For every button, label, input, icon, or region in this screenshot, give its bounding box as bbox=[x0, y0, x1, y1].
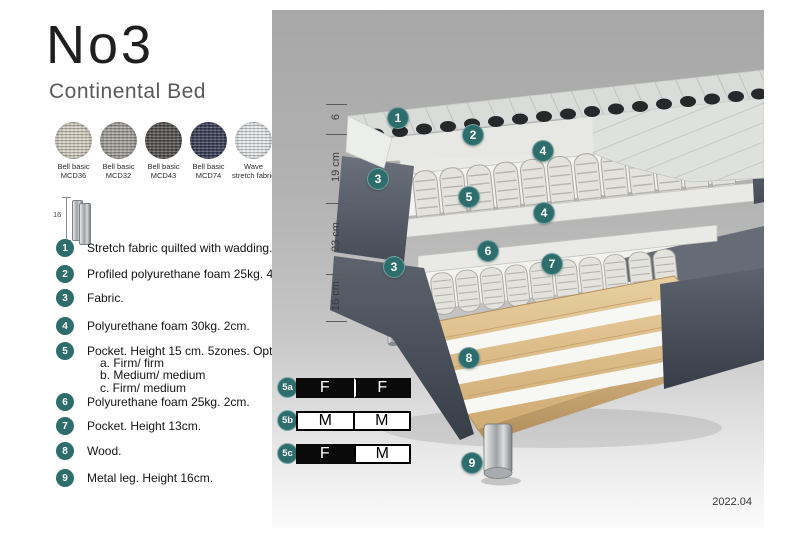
legend-item-9: 9 Metal leg. Height 16cm. bbox=[56, 469, 213, 487]
fabric-swatch-icon bbox=[100, 122, 137, 159]
version-label: 2022.04 bbox=[712, 496, 752, 508]
legend-item-text: Pocket. Height 13cm. bbox=[87, 419, 201, 433]
leg-height-value: 16 bbox=[52, 210, 62, 219]
dimension-label-leg: 16 cm bbox=[330, 266, 342, 326]
diagram-badge-8: 8 bbox=[458, 347, 480, 369]
swatch-code: MCD43 bbox=[151, 171, 176, 180]
swatch-name: Bell basic bbox=[147, 162, 179, 171]
legend-item-text: Profiled polyurethane foam 25kg. 4cm. bbox=[87, 267, 292, 281]
legend-item-text: Fabric. bbox=[87, 291, 124, 305]
diagram-badge-9: 9 bbox=[461, 452, 483, 474]
legend-item-1: 1 Stretch fabric quilted with wadding. bbox=[56, 239, 272, 257]
box-right-face bbox=[660, 268, 764, 389]
legend-number-badge: 8 bbox=[56, 442, 74, 460]
swatch-code: MCD32 bbox=[106, 171, 131, 180]
diagram-badge-5: 5 bbox=[458, 186, 480, 208]
dimension-label-box: 23 cm bbox=[330, 207, 342, 267]
swatch-bell-basic-mcd36: Bell basicMCD36 bbox=[51, 122, 96, 180]
firmness-row-5a: F F bbox=[296, 378, 411, 398]
firmness-cell: M bbox=[296, 411, 355, 431]
swatch-name: Bell basic bbox=[192, 162, 224, 171]
diagram-badge-3-upper: 3 bbox=[367, 168, 389, 190]
swatch-bell-basic-mcd32: Bell basicMCD32 bbox=[96, 122, 141, 180]
legend-item-8: 8 Wood. bbox=[56, 442, 121, 460]
legend-item-7: 7 Pocket. Height 13cm. bbox=[56, 417, 201, 435]
legend-item-4: 4 Polyurethane foam 30kg. 2cm. bbox=[56, 317, 250, 335]
firmness-cell: M bbox=[353, 411, 412, 431]
firmness-row-5b: M M bbox=[296, 411, 411, 431]
fabric-swatch-icon bbox=[55, 122, 92, 159]
fabric-swatches: Bell basicMCD36 Bell basicMCD32 Bell bas… bbox=[51, 122, 276, 180]
legend-item-text: Polyurethane foam 25kg. 2cm. bbox=[87, 395, 250, 409]
legend-number-badge: 2 bbox=[56, 265, 74, 283]
diagram-badge-3-lower: 3 bbox=[383, 256, 405, 278]
swatch-code: stretch fabric bbox=[232, 171, 275, 180]
legend-number-badge: 6 bbox=[56, 393, 74, 411]
firmness-row-label-5a: 5a bbox=[277, 377, 298, 398]
legend-number-badge: 9 bbox=[56, 469, 74, 487]
firmness-cell: F bbox=[354, 378, 412, 398]
firmness-row-label-5b: 5b bbox=[277, 410, 298, 431]
swatch-bell-basic-mcd74: Bell basicMCD74 bbox=[186, 122, 231, 180]
legend-item-text: Wood. bbox=[87, 444, 121, 458]
legend-number-badge: 5 bbox=[56, 342, 74, 360]
page-title: No3 bbox=[46, 14, 154, 76]
swatch-bell-basic-mcd43: Bell basicMCD43 bbox=[141, 122, 186, 180]
left-pane: No3 Continental Bed Bell basicMCD36 Bell… bbox=[0, 0, 272, 533]
diagram-badge-7: 7 bbox=[541, 253, 563, 275]
firmness-cell: F bbox=[296, 378, 354, 398]
diagram-panel: 6 19 cm 23 cm 16 cm 1 2 4 3 5 4 6 7 3 8 … bbox=[272, 10, 764, 528]
swatch-name: Bell basic bbox=[57, 162, 89, 171]
page: No3 Continental Bed Bell basicMCD36 Bell… bbox=[0, 0, 800, 533]
legend-item-text: Metal leg. Height 16cm. bbox=[87, 471, 213, 485]
legend-number-badge: 4 bbox=[56, 317, 74, 335]
page-subtitle: Continental Bed bbox=[49, 80, 206, 104]
firmness-row-label-5c: 5c bbox=[277, 443, 298, 464]
legend-number-badge: 3 bbox=[56, 289, 74, 307]
diagram-badge-4-lower: 4 bbox=[533, 202, 555, 224]
diagram-badge-6: 6 bbox=[477, 240, 499, 262]
dimension-label-mattress: 19 cm bbox=[330, 137, 342, 197]
swatch-code: MCD36 bbox=[61, 171, 86, 180]
diagram-badge-2: 2 bbox=[462, 124, 484, 146]
legend-item-3: 3 Fabric. bbox=[56, 289, 124, 307]
firmness-row-5c: F M bbox=[296, 444, 411, 464]
firmness-cell: F bbox=[296, 444, 354, 464]
ruler-tick bbox=[326, 203, 347, 204]
legend-item-5-options: a. Firm/ firm b. Medium/ medium c. Firm/… bbox=[100, 357, 205, 394]
swatch-name: Bell basic bbox=[102, 162, 134, 171]
fabric-swatch-icon bbox=[145, 122, 182, 159]
fabric-swatch-icon bbox=[235, 122, 272, 159]
legend-item-2: 2 Profiled polyurethane foam 25kg. 4cm. bbox=[56, 265, 292, 283]
diagram-badge-4-upper: 4 bbox=[532, 140, 554, 162]
legend-number-badge: 1 bbox=[56, 239, 74, 257]
swatch-name: Wave bbox=[244, 162, 263, 171]
swatch-wave-stretch-fabric: Wavestretch fabric bbox=[231, 122, 276, 180]
legend-number-badge: 7 bbox=[56, 417, 74, 435]
diagram-badge-1: 1 bbox=[387, 107, 409, 129]
dimension-line bbox=[66, 197, 67, 241]
legend-item-6: 6 Polyurethane foam 25kg. 2cm. bbox=[56, 393, 250, 411]
fabric-swatch-icon bbox=[190, 122, 227, 159]
legend-item-text: Polyurethane foam 30kg. 2cm. bbox=[87, 319, 250, 333]
legend-item-text: Stretch fabric quilted with wadding. bbox=[87, 241, 272, 255]
legend-option: b. Medium/ medium bbox=[100, 369, 205, 381]
firmness-cell: M bbox=[354, 444, 412, 464]
swatch-code: MCD74 bbox=[196, 171, 221, 180]
